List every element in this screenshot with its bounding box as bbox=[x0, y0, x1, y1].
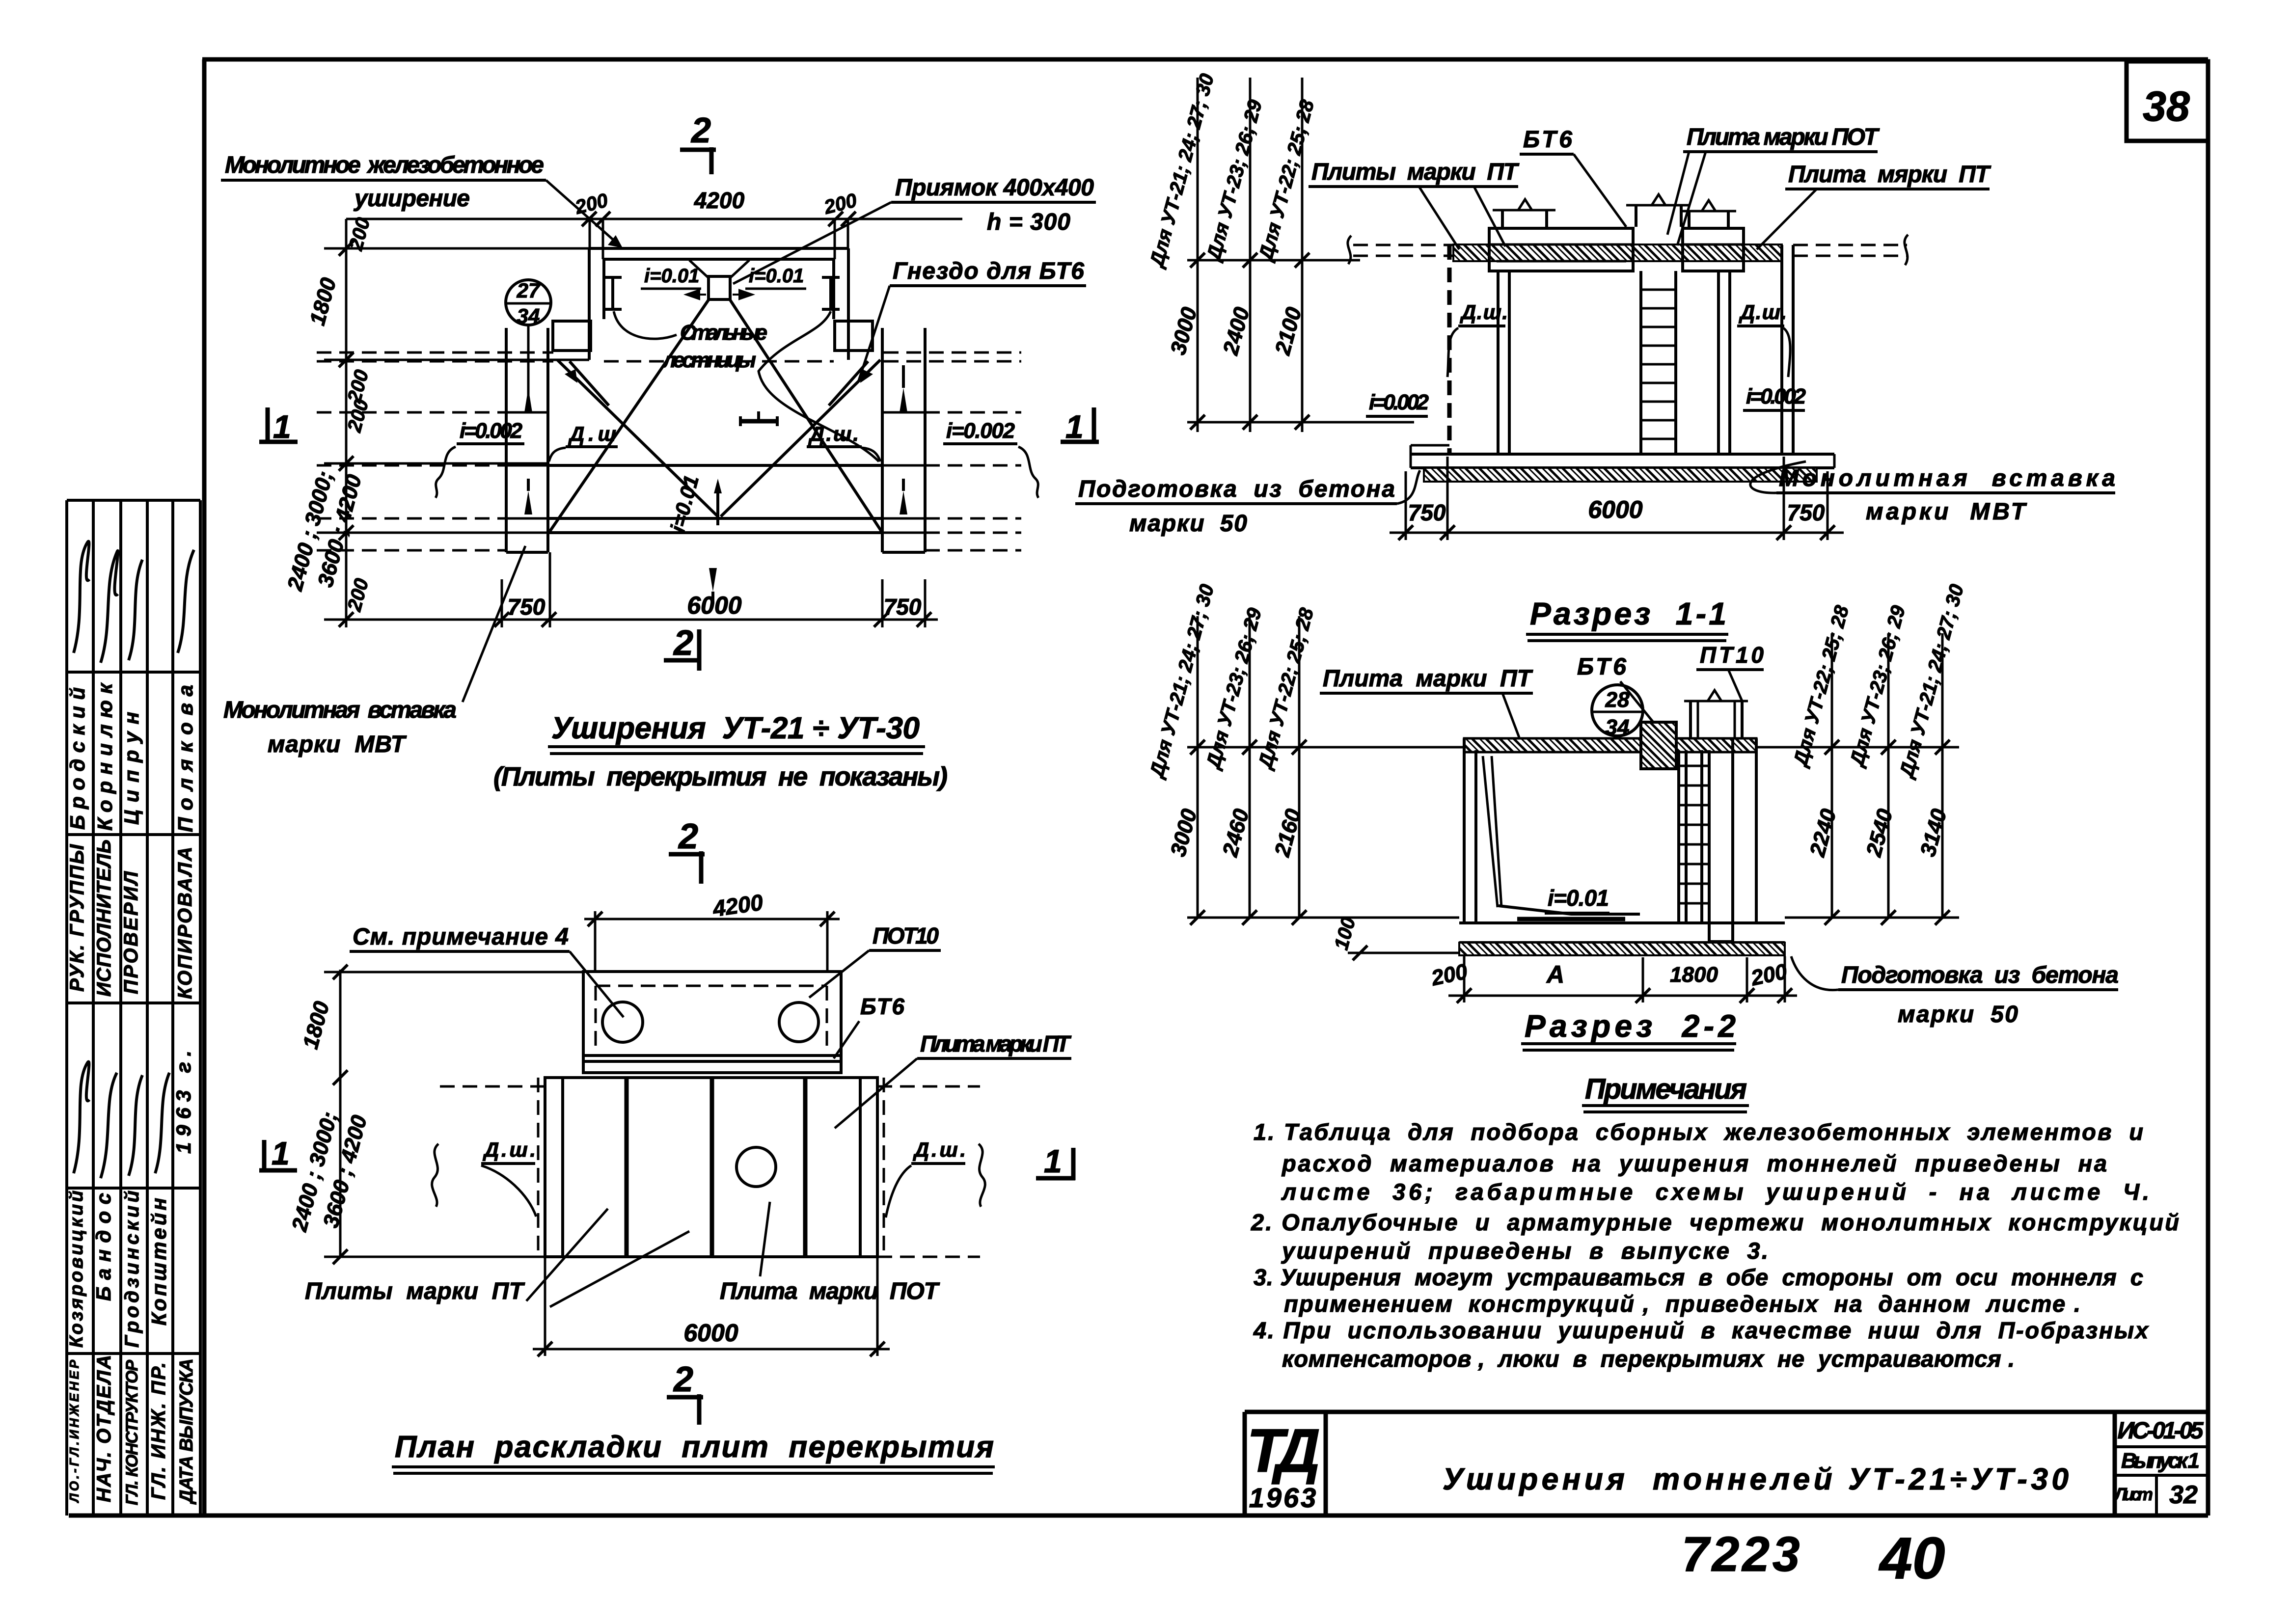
svg-text:750: 750 bbox=[1408, 500, 1446, 525]
svg-text:Выпуск 1: Выпуск 1 bbox=[2121, 1449, 2200, 1473]
svg-text:компенсаторов , люки в пере: компенсаторов , люки в перекрытиях не ус… bbox=[1282, 1346, 2015, 1372]
svg-text:1800: 1800 bbox=[1670, 963, 1718, 987]
svg-text:Стальные: Стальные bbox=[680, 321, 767, 345]
svg-text:750: 750 bbox=[508, 594, 545, 620]
svg-text:Плита марки ПОТ: Плита марки ПОТ bbox=[720, 1278, 940, 1304]
svg-text:Подготовка из бетона: Подготовка из бетона bbox=[1841, 962, 2119, 988]
svg-text:БТ6: БТ6 bbox=[1577, 654, 1626, 680]
svg-text:34: 34 bbox=[517, 304, 540, 327]
svg-text:2. Опалубочные и арматурные: 2. Опалубочные и арматурные чертежи моно… bbox=[1251, 1209, 2179, 1235]
svg-text:ТД: ТД bbox=[1247, 1417, 1320, 1485]
svg-text:ГЛ. ИНЖ. ПР.: ГЛ. ИНЖ. ПР. bbox=[148, 1362, 169, 1500]
svg-text:Гродзинский: Гродзинский bbox=[121, 1191, 143, 1348]
svg-text:НАЧ. ОТДЕЛА: НАЧ. ОТДЕЛА bbox=[93, 1355, 115, 1502]
svg-text:Приямок 400х400: Приямок 400х400 bbox=[895, 175, 1094, 201]
svg-text:Плита марки ПТ: Плита марки ПТ bbox=[920, 1031, 1072, 1056]
svg-text:40: 40 bbox=[1879, 1525, 1945, 1591]
svg-text:1: 1 bbox=[1044, 1143, 1062, 1179]
svg-text:ГЛ. КОНСТРУКТОР: ГЛ. КОНСТРУКТОР bbox=[123, 1360, 141, 1505]
svg-text:h = 300: h = 300 bbox=[987, 209, 1070, 235]
svg-text:ПТ10: ПТ10 bbox=[1700, 642, 1764, 668]
svg-text:1963: 1963 bbox=[1249, 1482, 1318, 1513]
svg-text:Подготовка из бетона: Подготовка из бетона bbox=[1078, 476, 1395, 502]
svg-text:Плиты марки ПТ: Плиты марки ПТ bbox=[305, 1278, 525, 1304]
svg-text:Разрез 1-1: Разрез 1-1 bbox=[1530, 596, 1726, 631]
svg-text:28: 28 bbox=[1605, 688, 1630, 712]
svg-text:Плиты марки ПТ: Плиты марки ПТ bbox=[1311, 159, 1520, 185]
svg-text:Лист: Лист bbox=[2113, 1484, 2153, 1504]
svg-text:6000: 6000 bbox=[687, 592, 741, 619]
svg-text:27: 27 bbox=[517, 279, 541, 302]
svg-text:КОПИРОВАЛА: КОПИРОВАЛА bbox=[174, 847, 196, 999]
svg-text:i=0.01: i=0.01 bbox=[749, 265, 804, 287]
svg-text:3. Уширения могут устраивать: 3. Уширения могут устраиваться в обе сто… bbox=[1254, 1264, 2143, 1290]
svg-text:ИС-01-05: ИС-01-05 bbox=[2118, 1418, 2204, 1444]
svg-text:i=0.002: i=0.002 bbox=[946, 419, 1015, 443]
svg-text:Д.ш.: Д.ш. bbox=[1739, 300, 1787, 324]
svg-text:750: 750 bbox=[884, 594, 922, 620]
svg-text:32: 32 bbox=[2169, 1481, 2198, 1509]
svg-text:i=0.01: i=0.01 bbox=[644, 265, 699, 287]
svg-text:применением конструкций , пр: применением конструкций , приведеных на … bbox=[1284, 1291, 2080, 1317]
svg-text:2: 2 bbox=[690, 111, 711, 150]
svg-text:34: 34 bbox=[1606, 715, 1630, 739]
svg-text:уширение: уширение bbox=[354, 186, 470, 212]
svg-text:Уширения УТ-21 ÷ УТ-30: Уширения УТ-21 ÷ УТ-30 bbox=[551, 711, 920, 745]
svg-text:уширений приведены в выпуск: уширений приведены в выпуске 3. bbox=[1281, 1238, 1768, 1264]
svg-text:См. примечание 4: См. примечание 4 bbox=[353, 924, 569, 950]
svg-text:Плита марки ПОТ: Плита марки ПОТ bbox=[1687, 124, 1880, 150]
svg-text:Монолитная вставка: Монолитная вставка bbox=[223, 697, 457, 723]
svg-text:марки МВТ: марки МВТ bbox=[1866, 499, 2027, 525]
svg-text:А: А bbox=[1546, 961, 1564, 988]
svg-text:Монолитное железобетонное: Монолитное железобетонное bbox=[225, 152, 544, 178]
svg-text:ПОТ10: ПОТ10 bbox=[873, 923, 939, 948]
svg-text:Козяровицкий: Козяровицкий bbox=[66, 1191, 87, 1348]
svg-text:ПРОВЕРИЛ: ПРОВЕРИЛ bbox=[120, 870, 142, 994]
svg-text:ИСПОЛНИТЕЛЬ: ИСПОЛНИТЕЛЬ bbox=[93, 839, 115, 997]
svg-text:i=0.01: i=0.01 bbox=[1548, 885, 1609, 911]
svg-text:Д.ш: Д.ш bbox=[568, 422, 616, 445]
svg-text:1: 1 bbox=[273, 408, 291, 445]
svg-text:4. При использовании уширени: 4. При использовании уширений в качестве… bbox=[1253, 1317, 2149, 1343]
svg-text:Плита марки ПТ: Плита марки ПТ bbox=[1323, 666, 1533, 692]
svg-text:Д.ш.: Д.ш. bbox=[808, 422, 859, 445]
svg-text:2: 2 bbox=[673, 1360, 693, 1399]
svg-text:38: 38 bbox=[2143, 83, 2190, 130]
svg-text:1: 1 bbox=[1065, 408, 1084, 445]
svg-text:ДАТА ВЫПУСКА: ДАТА ВЫПУСКА bbox=[176, 1358, 197, 1505]
svg-text:1. Таблица для подбора сбор: 1. Таблица для подбора сборных железобет… bbox=[1254, 1119, 2143, 1145]
svg-text:i=0.002: i=0.002 bbox=[1369, 390, 1429, 414]
svg-text:(Плиты перекрытия не показа: (Плиты перекрытия не показаны) bbox=[493, 762, 948, 791]
svg-text:1: 1 bbox=[272, 1135, 290, 1171]
svg-text:2: 2 bbox=[678, 817, 698, 856]
svg-text:i=0.002: i=0.002 bbox=[460, 419, 523, 443]
svg-text:6000: 6000 bbox=[683, 1319, 738, 1347]
svg-text:листе 36; габаритные схемы: листе 36; габаритные схемы уширений - на… bbox=[1281, 1179, 2149, 1205]
svg-text:марки МВТ: марки МВТ bbox=[268, 731, 407, 758]
svg-text:БТ6: БТ6 bbox=[1523, 127, 1572, 153]
svg-text:Д.ш.: Д.ш. bbox=[1460, 300, 1508, 324]
svg-text:БТ6: БТ6 bbox=[860, 994, 904, 1019]
svg-text:Гнездо для БТ6: Гнездо для БТ6 bbox=[893, 258, 1084, 284]
svg-text:4200: 4200 bbox=[694, 188, 745, 213]
svg-text:6000: 6000 bbox=[1588, 496, 1642, 523]
svg-text:расход материалов на уширен: расход материалов на уширения тоннелей п… bbox=[1281, 1150, 2107, 1176]
svg-text:2: 2 bbox=[673, 623, 693, 663]
svg-text:Плита мярки ПТ: Плита мярки ПТ bbox=[1788, 162, 1991, 188]
svg-text:РУК. ГРУППЫ: РУК. ГРУППЫ bbox=[66, 844, 88, 992]
svg-text:Примечания: Примечания bbox=[1585, 1073, 1747, 1105]
svg-text:i=0.002: i=0.002 bbox=[1746, 384, 1806, 408]
svg-text:Разрез 2-2: Разрез 2-2 bbox=[1525, 1008, 1736, 1044]
svg-text:7223: 7223 bbox=[1682, 1527, 1802, 1582]
svg-text:Уширения тоннелей УТ-21÷УТ-30: Уширения тоннелей УТ-21÷УТ-30 bbox=[1443, 1462, 2069, 1496]
svg-text:750: 750 bbox=[1787, 500, 1825, 525]
